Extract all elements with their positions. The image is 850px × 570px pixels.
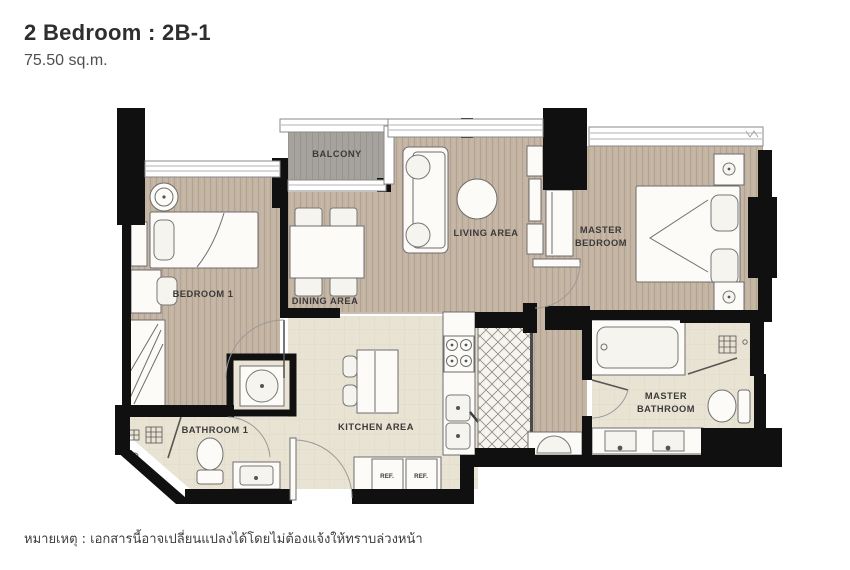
toilet: [708, 390, 736, 422]
wall-segment: [680, 310, 760, 323]
kitchen-island: [357, 350, 398, 413]
floorplan-page: 2 Bedroom : 2B-1 75.50 sq.m.: [0, 0, 850, 570]
floorplan-drawing: REF. REF.: [0, 0, 850, 570]
lamp-dot: [728, 296, 731, 299]
toilet-tank: [738, 390, 750, 423]
wall-segment: [280, 308, 340, 318]
wall-segment: [701, 428, 782, 467]
bed-pillow: [154, 220, 174, 260]
bathroom-sink: [240, 466, 273, 485]
balcony-rail: [288, 180, 386, 191]
closet-hatch: [478, 318, 532, 450]
closet-wall-line: [530, 318, 533, 450]
master-bathroom-label: MASTER: [645, 391, 687, 401]
window-band: [388, 119, 543, 137]
wall-segment: [475, 448, 535, 458]
tv-console: [527, 224, 543, 254]
fridge-label: REF.: [380, 473, 394, 480]
living-label: LIVING AREA: [453, 228, 518, 238]
wall-segment: [460, 455, 474, 504]
wall-segment: [122, 405, 234, 417]
door-leaf: [533, 259, 580, 267]
wall-segment: [582, 416, 592, 458]
bed-pillow: [711, 195, 738, 231]
window-band: [589, 127, 763, 146]
wall-segment: [758, 150, 772, 200]
master-wardrobe: [546, 190, 573, 256]
wall-segment: [280, 175, 288, 318]
wall-segment: [122, 225, 131, 407]
master-bathroom-label: BATHROOM: [637, 404, 695, 414]
stool: [343, 385, 357, 406]
dining-chair: [295, 208, 322, 227]
kitchen-label: KITCHEN AREA: [338, 422, 414, 432]
balcony-rail: [280, 119, 394, 132]
wall-segment: [748, 197, 777, 278]
wall-segment: [750, 320, 764, 376]
footer-note: หมายเหตุ : เอกสารนี้อาจเปลี่ยนแปลงได้โดย…: [24, 528, 423, 549]
coffee-table: [457, 179, 497, 219]
master-bedroom-label: MASTER: [580, 225, 622, 235]
sofa-cushion: [406, 155, 430, 179]
wall-segment: [545, 306, 590, 330]
wall-segment: [117, 108, 145, 225]
lamp-dot: [728, 168, 731, 171]
builtin-cabinet: [131, 222, 147, 266]
tv-console: [529, 179, 541, 221]
dining-table: [290, 226, 364, 278]
dining-chair: [330, 277, 357, 296]
side-table-dot: [162, 195, 165, 198]
bedroom1-label: BEDROOM 1: [173, 289, 234, 299]
stool: [343, 356, 357, 377]
wall-segment: [352, 489, 462, 504]
balcony-label: BALCONY: [312, 149, 362, 159]
window-band: [145, 161, 280, 177]
toilet: [197, 438, 223, 470]
bed-pillow: [711, 249, 738, 285]
sofa-cushion: [406, 223, 430, 247]
toilet-tank: [197, 470, 223, 484]
bathtub-inner: [597, 327, 678, 368]
tv-console: [527, 146, 543, 176]
entrance-door-leaf: [290, 438, 296, 500]
dining-chair: [330, 208, 357, 227]
dining-chair: [295, 277, 322, 296]
wall-segment: [754, 374, 766, 430]
dining-label: DINING AREA: [292, 296, 359, 306]
wall-segment: [475, 312, 533, 328]
wall-segment: [185, 489, 292, 504]
fridge-label: REF.: [414, 473, 428, 480]
bathroom1-label: BATHROOM 1: [182, 425, 249, 435]
master-bedroom-label: BEDROOM: [575, 238, 627, 248]
wall-segment: [543, 108, 587, 190]
wall-segment: [758, 276, 772, 322]
